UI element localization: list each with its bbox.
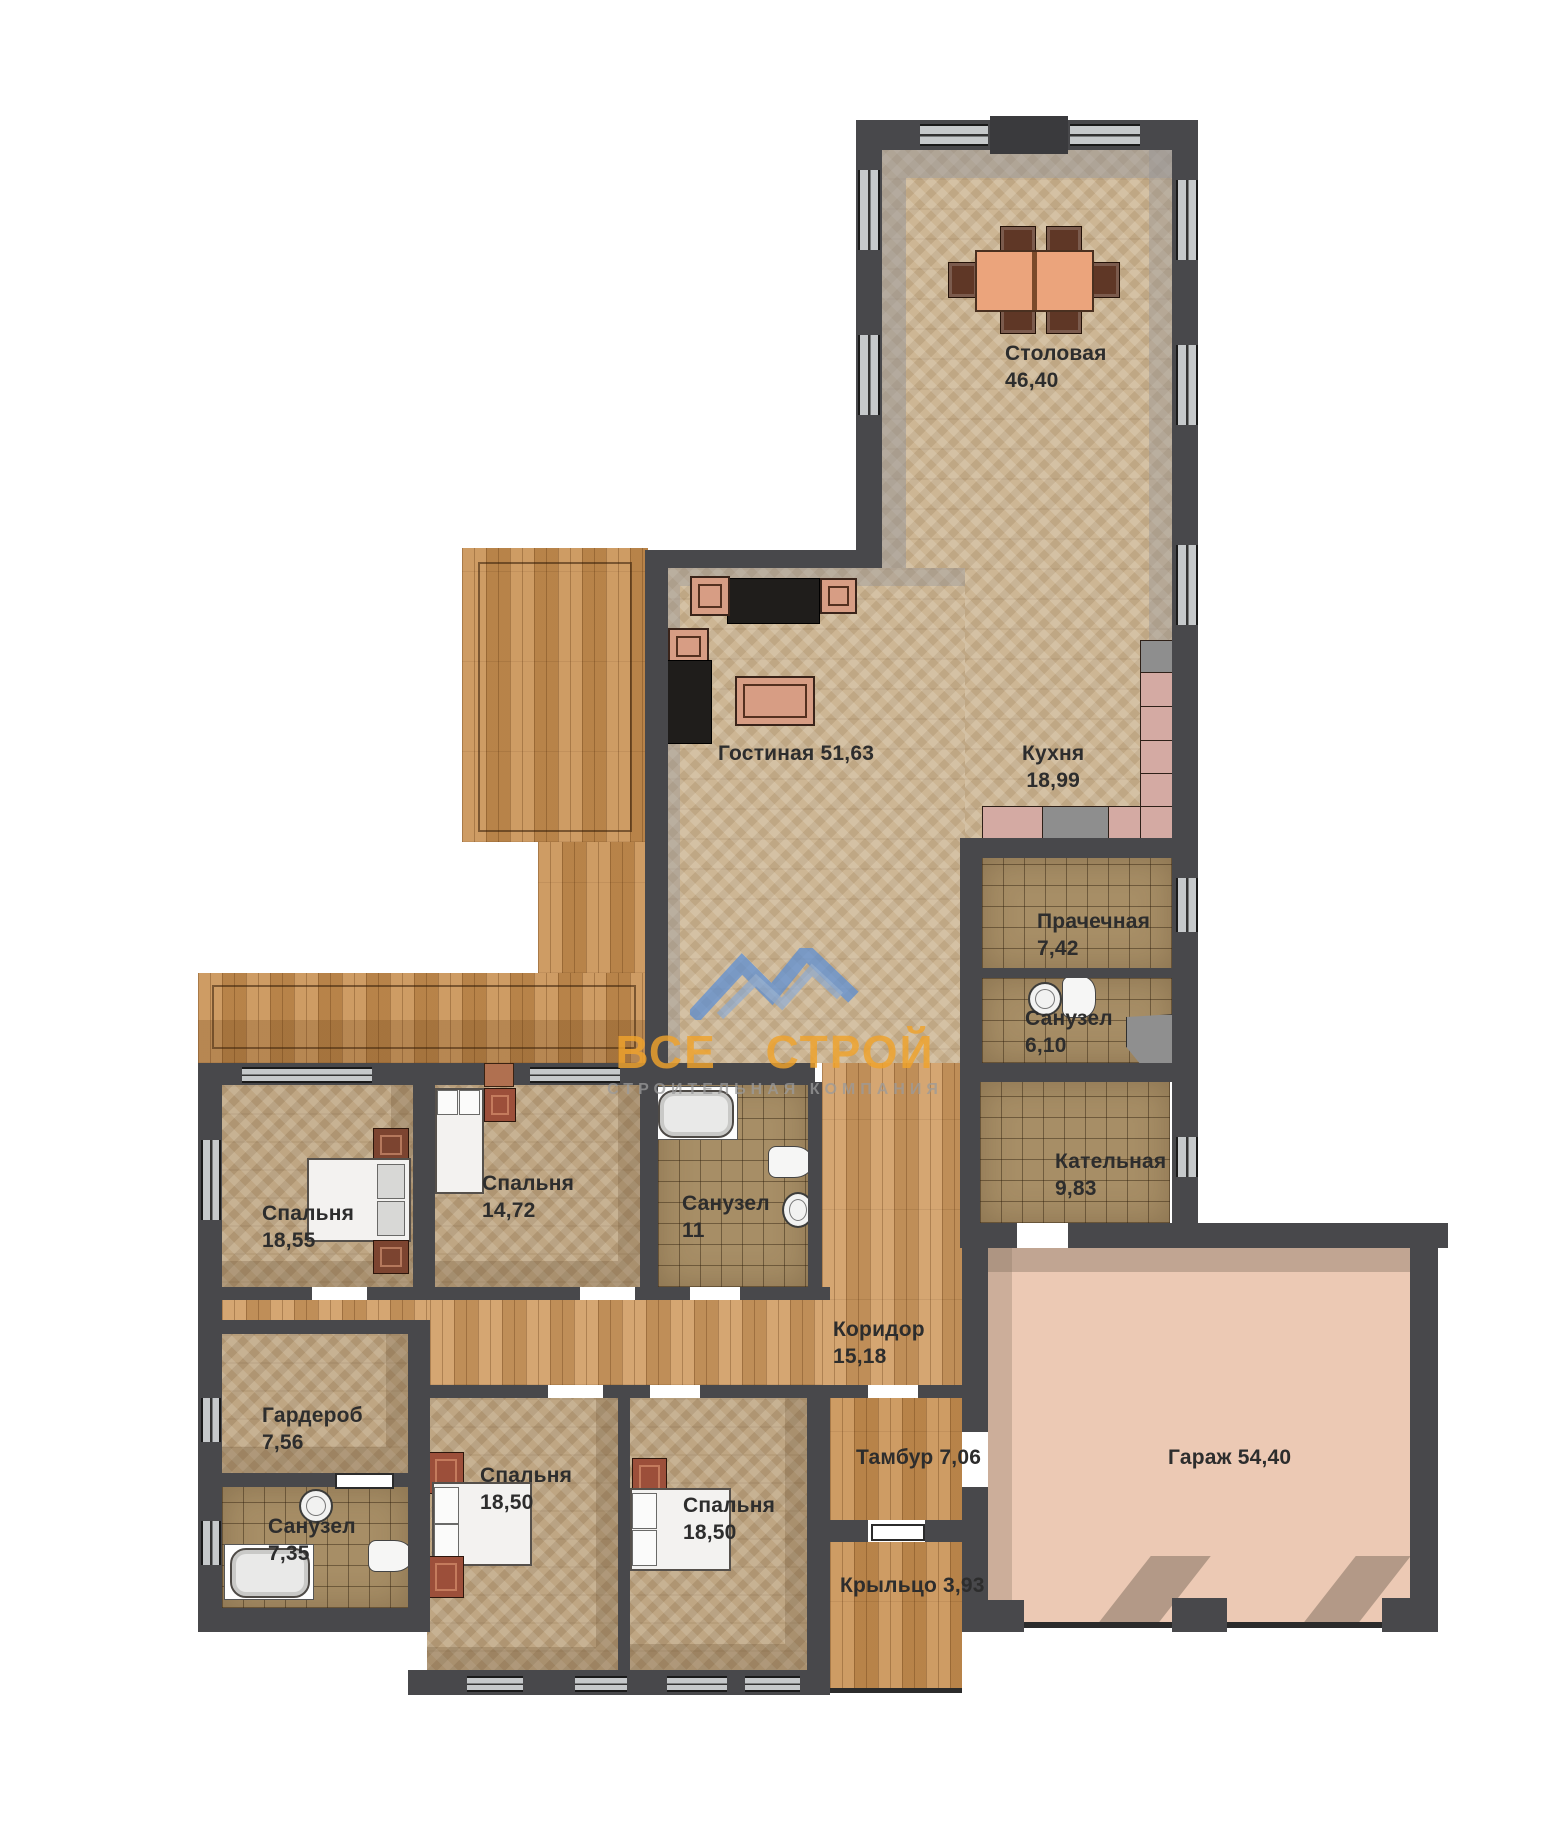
terrace-door	[484, 1063, 514, 1087]
room-name: Санузел	[1025, 1005, 1113, 1032]
room-name: Санузел	[268, 1513, 356, 1540]
window	[1176, 545, 1198, 625]
dining-table	[975, 250, 1094, 312]
room-name: Коридор	[833, 1316, 925, 1343]
room-label-bedroom-1850-left: Спальня 18,50	[480, 1462, 572, 1516]
room-name: Столовая	[1005, 340, 1107, 367]
room-area: 7,56	[262, 1429, 363, 1456]
nightstand	[428, 1556, 464, 1598]
corridor-floor-west	[222, 1300, 430, 1322]
room-name: Спальня	[262, 1200, 354, 1227]
entry-door	[871, 1524, 925, 1541]
room-area: 7,06	[939, 1446, 981, 1469]
room-area: 15,18	[833, 1343, 925, 1370]
room-label-porch: Крыльцо 3,93	[840, 1572, 985, 1599]
pillow	[434, 1487, 459, 1524]
room-area: 46,40	[1005, 367, 1107, 394]
deck-shadow	[198, 973, 648, 1063]
room-label-laundry: Прачечная 7,42	[1037, 908, 1150, 962]
room-name: Гардероб	[262, 1402, 363, 1429]
room-label-bath-610: Санузел 6,10	[1025, 1005, 1113, 1059]
armchair	[820, 578, 857, 614]
room-label-wardrobe: Гардероб 7,56	[262, 1402, 363, 1456]
room-label-bedroom-1850-right: Спальня 18,50	[683, 1492, 775, 1546]
window	[1176, 180, 1198, 260]
wall	[962, 1398, 988, 1432]
room-name: Гостиная	[718, 742, 815, 765]
window	[467, 1676, 523, 1692]
watermark-subtitle: СТРОИТЕЛЬНАЯ КОМПАНИЯ	[585, 1081, 965, 1099]
dining-chair	[1090, 262, 1120, 298]
coffee-table	[735, 676, 815, 726]
room-name: Кательная	[1055, 1148, 1166, 1175]
window	[575, 1676, 627, 1692]
sofa	[727, 578, 820, 624]
wall	[808, 1082, 822, 1287]
pillow	[437, 1090, 458, 1115]
porch-floor	[830, 1542, 962, 1692]
room-area: 18,55	[262, 1227, 354, 1254]
window	[201, 1140, 221, 1220]
room-area: 11	[682, 1217, 770, 1244]
room-label-boiler: Кательная 9,83	[1055, 1148, 1166, 1202]
toilet	[368, 1540, 412, 1572]
wall	[640, 1085, 658, 1287]
watermark-title: ВСЕ СТРОЙ	[585, 1025, 965, 1079]
room-name: Санузел	[682, 1190, 770, 1217]
stove	[1042, 806, 1110, 840]
window	[667, 1676, 727, 1692]
window	[242, 1067, 372, 1083]
room-name: Спальня	[482, 1170, 574, 1197]
room-label-dining: Столовая 46,40	[1005, 340, 1107, 394]
kitchen-counter	[982, 806, 1044, 840]
room-label-garage: Гараж 54,40	[1168, 1444, 1291, 1471]
door-opening	[1017, 1223, 1068, 1248]
wardrobe-cabinet	[484, 1088, 516, 1122]
window	[1070, 124, 1140, 146]
wall	[1410, 1223, 1438, 1603]
room-label-bath-11: Санузел 11	[682, 1190, 770, 1244]
window	[858, 170, 880, 250]
room-area: 18,50	[480, 1489, 572, 1516]
window	[745, 1676, 800, 1692]
room-name: Крыльцо	[840, 1574, 937, 1597]
watermark: ВСЕ СТРОЙ СТРОИТЕЛЬНАЯ КОМПАНИЯ	[585, 948, 965, 1099]
wall	[982, 968, 1173, 978]
pillow	[632, 1530, 657, 1566]
window	[201, 1398, 221, 1442]
wall	[618, 1398, 630, 1673]
wall	[408, 1320, 430, 1608]
window	[1176, 878, 1198, 932]
wall	[413, 1085, 435, 1287]
door-opening	[690, 1287, 740, 1300]
room-area: 9,83	[1055, 1175, 1166, 1202]
wall	[960, 1063, 1198, 1082]
chimney-block	[990, 116, 1068, 154]
nightstand	[373, 1128, 409, 1162]
door	[335, 1473, 394, 1489]
room-area: 51,63	[821, 742, 875, 765]
room-name: Прачечная	[1037, 908, 1150, 935]
pillar	[1172, 1598, 1227, 1632]
door-opening	[312, 1287, 367, 1300]
deck-edge-line	[478, 562, 632, 832]
pillow	[632, 1493, 657, 1529]
door-opening	[548, 1385, 603, 1398]
room-area: 18,50	[683, 1519, 775, 1546]
room-area: 6,10	[1025, 1032, 1113, 1059]
wall	[962, 1600, 1024, 1632]
wall	[198, 1320, 430, 1334]
room-name: Спальня	[480, 1462, 572, 1489]
room-area: 14,72	[482, 1197, 574, 1224]
room-area: 7,35	[268, 1540, 356, 1567]
room-area: 18,99	[1022, 767, 1084, 794]
pillow	[377, 1164, 405, 1199]
room-label-bedroom-1472: Спальня 14,72	[482, 1170, 574, 1224]
kitchen-counter	[1108, 806, 1142, 840]
room-label-corridor: Коридор 15,18	[833, 1316, 925, 1370]
door-opening	[580, 1287, 635, 1300]
room-label-vestibule: Тамбур 7,06	[856, 1444, 981, 1471]
wall	[960, 1082, 980, 1223]
porch-edge-line	[830, 1688, 962, 1693]
nightstand	[373, 1240, 409, 1274]
roof-logo-icon	[690, 948, 860, 1020]
room-name: Гараж	[1168, 1446, 1232, 1469]
room-name: Тамбур	[856, 1446, 933, 1469]
room-label-bedroom-1855: Спальня 18,55	[262, 1200, 354, 1254]
window	[1176, 345, 1198, 425]
wall	[198, 1608, 430, 1632]
wall	[645, 550, 882, 568]
pillar	[1382, 1598, 1438, 1632]
dining-chair	[948, 262, 978, 298]
room-label-living: Гостиная 51,63	[718, 740, 874, 767]
room-label-bath-735: Санузел 7,35	[268, 1513, 356, 1567]
armchair	[690, 576, 730, 616]
toilet	[768, 1146, 812, 1178]
pillow	[459, 1090, 480, 1115]
window	[920, 124, 988, 146]
door-opening	[868, 1385, 918, 1398]
wall	[408, 1385, 830, 1398]
door-opening	[650, 1385, 700, 1398]
corridor-floor-horizontal	[430, 1300, 822, 1385]
pillow	[377, 1201, 405, 1236]
floor-plan: Столовая 46,40 Гостиная 51,63 Кухня 18,9…	[0, 0, 1549, 1822]
room-name: Кухня	[1022, 740, 1084, 767]
window	[858, 335, 880, 415]
window	[1176, 1137, 1198, 1177]
room-area: 54,40	[1238, 1446, 1292, 1469]
wall	[960, 838, 1198, 858]
wall	[960, 1223, 1198, 1248]
room-name: Спальня	[683, 1492, 775, 1519]
room-label-kitchen: Кухня 18,99	[1022, 740, 1084, 794]
window	[201, 1521, 221, 1565]
room-area: 7,42	[1037, 935, 1150, 962]
room-area: 3,93	[943, 1574, 985, 1597]
tv-cabinet	[662, 660, 712, 744]
